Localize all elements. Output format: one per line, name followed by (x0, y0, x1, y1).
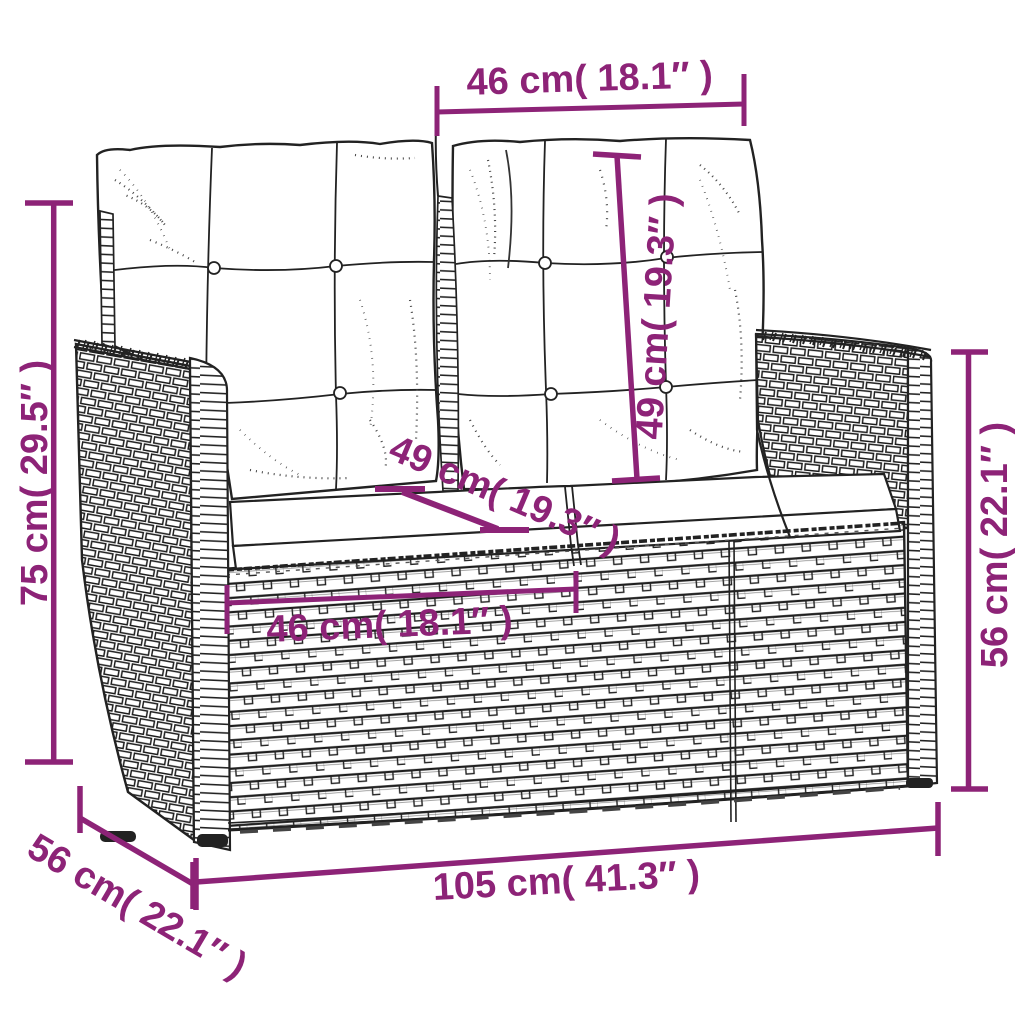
svg-text:75 cm( 29.5″ ): 75 cm( 29.5″ ) (14, 360, 56, 606)
svg-text:56 cm( 22.1″ ): 56 cm( 22.1″ ) (974, 422, 1016, 668)
svg-text:46 cm( 18.1″ ): 46 cm( 18.1″ ) (466, 54, 714, 104)
